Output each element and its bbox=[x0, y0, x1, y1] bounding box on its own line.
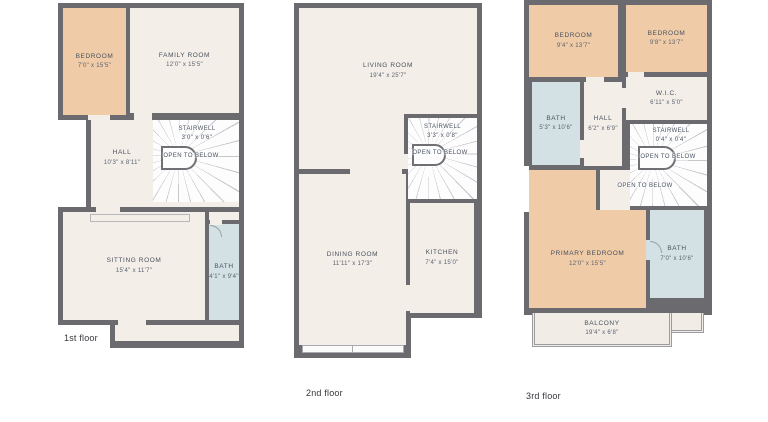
open-to-below-label-2: OPEN TO BELOW bbox=[602, 183, 688, 189]
open-to-below-label: OPEN TO BELOW bbox=[135, 153, 247, 159]
open-to-below-area bbox=[600, 170, 630, 210]
floor-label-3: 3rd floor bbox=[526, 391, 561, 401]
room-dims: 5'3" x 10'6" bbox=[539, 125, 572, 131]
window-mullion bbox=[352, 346, 353, 352]
entry-porch bbox=[115, 325, 239, 341]
stairwell-dims: 3'3" x 0'8" bbox=[412, 133, 473, 139]
room-dims: 7'0" x 15'5" bbox=[78, 63, 111, 69]
floor-plan-2: LIVING ROOM 19'4" x 25'7" STAIRWELL 3'3"… bbox=[294, 3, 482, 361]
room-dims: 11'11" x 17'3" bbox=[333, 261, 373, 267]
door-gap bbox=[622, 88, 626, 108]
stairwell: STAIRWELL 3'0" x 0'6" OPEN TO BELOW bbox=[153, 120, 239, 202]
door-gap bbox=[586, 77, 604, 82]
stairwell-name: STAIRWELL bbox=[412, 124, 473, 130]
room-primary-bedroom: PRIMARY BEDROOM 12'0" x 15'5" bbox=[529, 210, 646, 308]
room-name: BATH bbox=[667, 246, 686, 253]
room-name: HALL bbox=[113, 150, 132, 157]
room-dining-room: DINING ROOM 11'11" x 17'3" bbox=[299, 174, 406, 345]
room-dims: 9'8" x 13'7" bbox=[650, 40, 683, 46]
floor-label-1: 1st floor bbox=[64, 333, 98, 343]
room-bath-top: BATH 5'3" x 10'6" bbox=[532, 82, 580, 165]
room-name: FAMILY ROOM bbox=[159, 53, 210, 60]
room-wic: W.I.C. 6'11" x 5'0" bbox=[626, 77, 707, 120]
floor-label-2: 2nd floor bbox=[306, 388, 343, 398]
room-dims: 4'1" x 9'4" bbox=[209, 274, 239, 280]
room-name: KITCHEN bbox=[426, 250, 459, 257]
door-gap bbox=[406, 285, 410, 311]
floor-plan-3: BEDROOM 9'4" x 13'7" BEDROOM 9'8" x 13'7… bbox=[524, 0, 712, 360]
room-bath: BATH 4'1" x 9'4" bbox=[209, 224, 239, 320]
room-dims: 12'0" x 15'5" bbox=[569, 261, 606, 267]
room-bath-primary: BATH 7'0" x 10'6" bbox=[650, 210, 704, 298]
outline-notch bbox=[411, 318, 482, 358]
room-name: DINING ROOM bbox=[327, 252, 378, 259]
room-dims: 7'4" x 15'0" bbox=[425, 260, 458, 266]
floorplan-canvas: BEDROOM 7'0" x 15'5" FAMILY ROOM 12'0" x… bbox=[0, 0, 768, 422]
room-primary-bedroom-upper bbox=[529, 170, 596, 214]
room-name: BALCONY bbox=[584, 321, 619, 328]
room-dims: 15'4" x 11'7" bbox=[116, 268, 152, 274]
stairwell-name: STAIRWELL bbox=[638, 128, 704, 134]
room-dims: 6'2" x 6'9" bbox=[588, 126, 618, 132]
room-dims: 10'3" x 8'11" bbox=[104, 160, 140, 166]
stairwell: STAIRWELL 3'3" x 0'8" OPEN TO BELOW bbox=[408, 118, 477, 199]
room-dims: 12'0" x 15'5" bbox=[166, 62, 203, 68]
room-sitting-room: SITTING ROOM 15'4" x 11'7" bbox=[63, 212, 205, 320]
room-dims: 9'4" x 13'7" bbox=[557, 43, 590, 49]
open-to-below-label: OPEN TO BELOW bbox=[384, 150, 496, 156]
door-gap bbox=[96, 207, 120, 212]
room-name: LIVING ROOM bbox=[363, 63, 413, 70]
room-name: HALL bbox=[594, 116, 613, 123]
open-to-below-label: OPEN TO BELOW bbox=[614, 154, 722, 160]
room-name: SITTING ROOM bbox=[107, 258, 162, 265]
door-gap bbox=[134, 113, 152, 120]
door-gap bbox=[580, 140, 584, 158]
stairwell-dims: 3'0" x 0'6" bbox=[159, 135, 235, 141]
door-gap bbox=[209, 212, 239, 220]
window-bay bbox=[90, 214, 190, 222]
room-balcony: BALCONY 19'4" x 6'8" bbox=[532, 313, 672, 347]
stairwell: STAIRWELL 0'4" x 0'4" OPEN TO BELOW bbox=[630, 124, 707, 206]
room-bedroom-right: BEDROOM 9'8" x 13'7" bbox=[626, 5, 707, 72]
room-name: PRIMARY BEDROOM bbox=[551, 251, 625, 258]
window bbox=[302, 345, 404, 353]
room-dims: 6'11" x 5'0" bbox=[650, 100, 683, 106]
room-name: BATH bbox=[546, 116, 565, 123]
door-gap bbox=[118, 320, 146, 325]
room-name: BEDROOM bbox=[648, 31, 686, 38]
room-dims: 19'4" x 25'7" bbox=[370, 73, 407, 79]
room-kitchen: KITCHEN 7'4" x 15'0" bbox=[410, 203, 474, 313]
room-family-room: FAMILY ROOM 12'0" x 15'5" bbox=[130, 8, 239, 113]
door-gap bbox=[350, 169, 402, 174]
stairwell-dims: 0'4" x 0'4" bbox=[638, 137, 704, 143]
room-bedroom: BEDROOM 7'0" x 15'5" bbox=[63, 8, 126, 115]
room-name: BEDROOM bbox=[76, 54, 114, 61]
room-name: W.I.C. bbox=[656, 91, 677, 98]
stairwell-name: STAIRWELL bbox=[159, 126, 235, 132]
room-bedroom-left: BEDROOM 9'4" x 13'7" bbox=[529, 5, 618, 77]
room-name: BEDROOM bbox=[555, 33, 593, 40]
room-name: BATH bbox=[214, 264, 233, 271]
door-gap bbox=[88, 115, 110, 120]
room-dims: 7'0" x 10'6" bbox=[660, 256, 693, 262]
floor-plan-1: BEDROOM 7'0" x 15'5" FAMILY ROOM 12'0" x… bbox=[58, 3, 244, 348]
room-dims: 19'4" x 6'8" bbox=[585, 330, 618, 336]
door-gap bbox=[628, 72, 644, 77]
balcony-step bbox=[672, 313, 704, 333]
